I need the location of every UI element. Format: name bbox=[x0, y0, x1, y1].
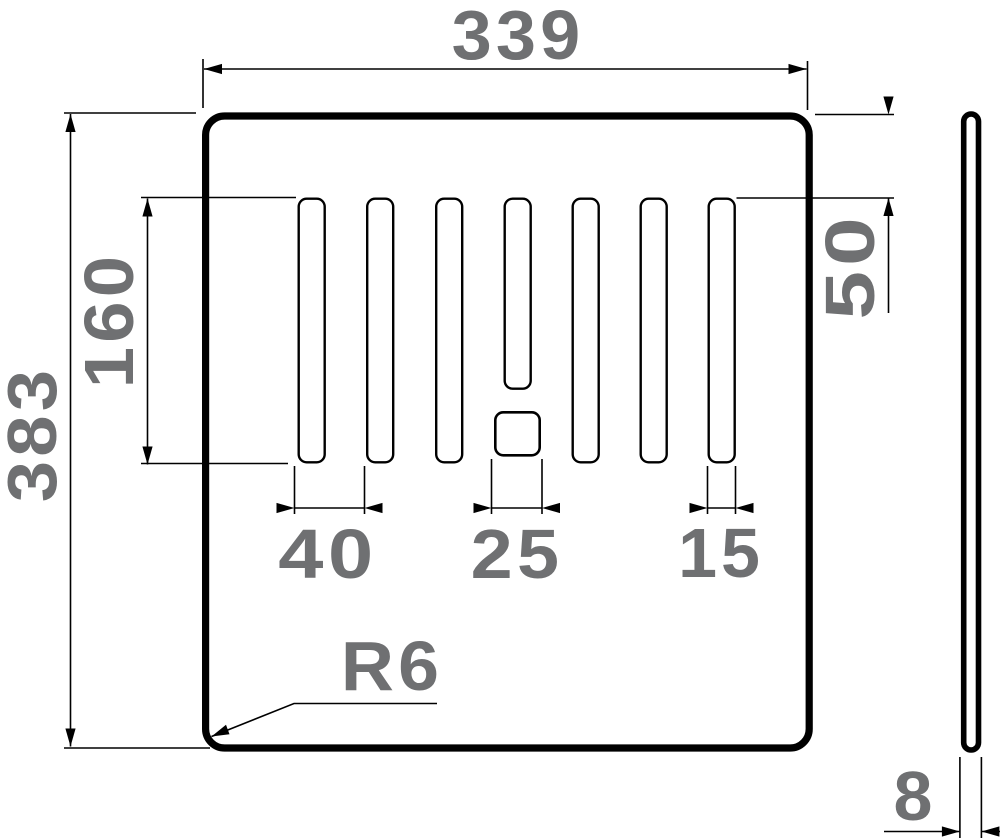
svg-text:R6: R6 bbox=[341, 628, 443, 706]
svg-text:50: 50 bbox=[810, 212, 889, 319]
svg-text:25: 25 bbox=[471, 516, 564, 594]
svg-text:40: 40 bbox=[278, 515, 378, 593]
svg-text:160: 160 bbox=[71, 252, 149, 389]
svg-text:339: 339 bbox=[452, 0, 585, 75]
svg-text:15: 15 bbox=[678, 514, 764, 592]
svg-text:383: 383 bbox=[0, 366, 72, 503]
svg-text:8: 8 bbox=[894, 757, 937, 835]
